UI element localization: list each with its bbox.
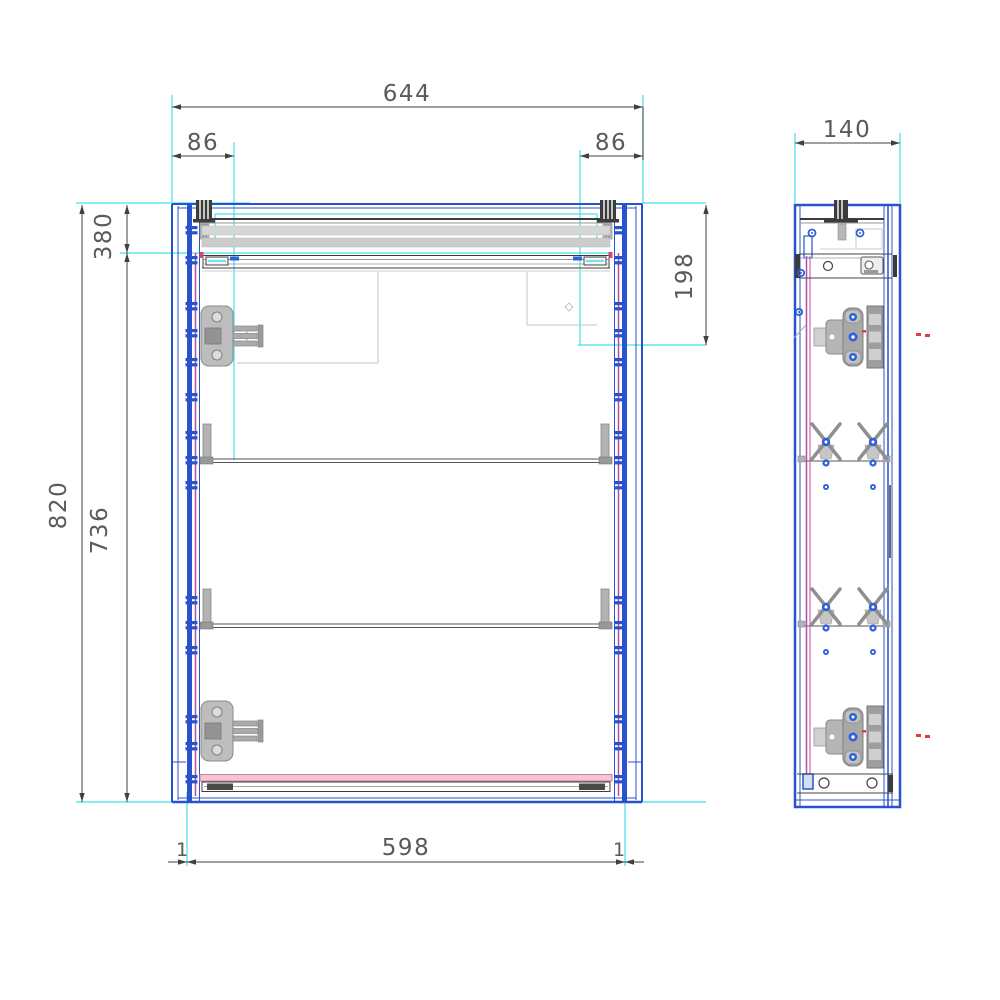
dim-back-rail-label: 380 — [91, 212, 117, 260]
front-view — [172, 200, 642, 802]
bottom-strip-pink — [200, 775, 612, 782]
fv-shelf-clips — [186, 226, 627, 783]
led-strip-2 — [202, 238, 610, 247]
sv-hinge-bottom — [814, 706, 883, 768]
fv-top-hardware — [193, 200, 619, 247]
dim-gap-left-label: 1 — [176, 839, 188, 861]
fv-hinge-bottom — [201, 701, 263, 761]
dim-left-offset-label: 86 — [187, 130, 219, 156]
dim-bottom-width-label: 598 — [382, 835, 430, 861]
sv-hanger-bracket — [834, 200, 848, 220]
sv-shelf-support-lower — [798, 589, 890, 655]
dim-overall-height-label: 820 — [46, 481, 72, 529]
drawing-sheet: 644 86 86 140 198 380 820 736 598 1 1 — [0, 0, 1000, 1000]
glass-shelf-upper — [200, 424, 612, 464]
rail-marker-right — [609, 252, 613, 258]
rail-marker-left — [200, 252, 204, 258]
dim-top-section-label: 198 — [672, 252, 698, 300]
fv-side-panels — [190, 205, 625, 801]
dim-depth-label: 140 — [823, 117, 871, 143]
fv-carcass-outline — [172, 204, 642, 802]
fv-faint-brackets — [237, 272, 597, 363]
glass-shelf-lower — [200, 589, 612, 629]
dim-gap-right-label: 1 — [613, 839, 625, 861]
sv-back-panel — [803, 236, 813, 789]
red-reference-markers — [916, 333, 930, 738]
dim-right-offset-label: 86 — [595, 130, 627, 156]
side-view — [794, 200, 930, 807]
dimensions: 644 86 86 140 198 380 820 736 598 1 1 — [46, 81, 900, 865]
technical-drawing-canvas: 644 86 86 140 198 380 820 736 598 1 1 — [0, 0, 1000, 1000]
fv-bottom-assembly — [200, 775, 612, 792]
sv-hinge-top — [814, 306, 883, 368]
dim-overall-width-label: 644 — [383, 81, 431, 107]
led-strip-1 — [202, 226, 610, 235]
fv-hinge-top — [201, 306, 263, 366]
sv-shelf-support-upper — [798, 424, 890, 490]
dim-interior-height-label: 736 — [87, 506, 113, 554]
fv-top-rail — [200, 252, 613, 271]
